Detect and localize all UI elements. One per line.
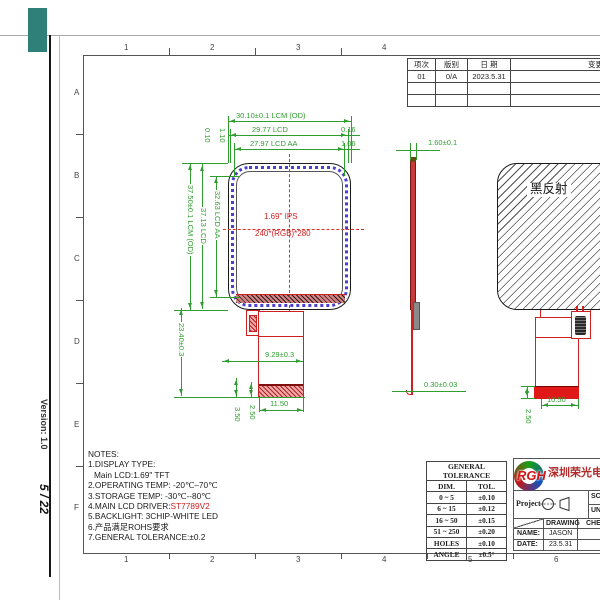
note-driver-value: ST7789V2: [171, 501, 210, 511]
tolerance-table: GENERAL TOLERANCE DIM. TOL. 0 ~ 5±0.10 6…: [426, 461, 507, 561]
titleblock-line: [543, 518, 544, 550]
extension-line: [521, 398, 535, 399]
frame-border-left: [83, 55, 84, 553]
dim-line: [229, 135, 348, 136]
tolerance-cell: HOLES: [427, 537, 467, 548]
dim-label-fpc-width-bottom: 11.50: [270, 400, 288, 408]
row-letter: D: [74, 337, 80, 346]
extension-line: [348, 129, 349, 163]
dim-line: [228, 121, 351, 122]
side-connector: [413, 302, 420, 330]
dim-label-gap-left-1: 0.10: [203, 127, 211, 144]
row-letter: F: [74, 503, 79, 512]
back-component-pin: [582, 306, 584, 312]
date-value: 23.5.31: [549, 541, 572, 548]
row-letter: C: [74, 254, 80, 263]
note-line: 6.产品满足ROHS要求: [88, 522, 218, 532]
scale-label: SCALE: [591, 493, 600, 500]
frame-tick: [76, 217, 83, 218]
tolerance-cell: ±0.5°: [467, 549, 507, 560]
dim-line: [251, 382, 252, 397]
col-number-top: 2: [210, 43, 214, 52]
frame-tick: [76, 134, 83, 135]
col-number-bottom: 3: [296, 555, 300, 564]
tolerance-cell: ±0.10: [467, 537, 507, 548]
page-indicator: 5 / 22: [37, 483, 50, 515]
frame-tick: [255, 553, 256, 559]
datasheet-page: Version: 1.0 5 / 22 1 2 3 4 1 2 3 4 5 6 …: [0, 0, 600, 600]
date-label: DATE:: [517, 541, 538, 548]
frame-border-top: [83, 55, 600, 56]
dim-label-od-height: 37.50±0.1 LCM (OD): [186, 184, 194, 256]
dim-line: [396, 150, 440, 151]
fpc-stiffener: [259, 384, 303, 397]
project-label: Project: [516, 499, 541, 508]
dim-line: [541, 405, 578, 406]
dim-label-aa-width: 27.97 LCD AA: [250, 140, 298, 148]
revision-col-header: 变更: [511, 59, 600, 71]
frame-tick: [76, 466, 83, 467]
note-line: 5.BACKLIGHT: 3CHIP-WHITE LED: [88, 511, 218, 521]
tolerance-cell: 6 ~ 15: [427, 503, 467, 514]
tolerance-cell: ±0.15: [467, 515, 507, 526]
extension-line: [228, 116, 229, 163]
note-line: 3.STORAGE TEMP: -30℃--80℃: [88, 491, 218, 501]
tolerance-cell: ±0.12: [467, 503, 507, 514]
fpc-tab-component: [249, 315, 257, 332]
dim-label-gap-left-2: 1.10: [218, 127, 226, 144]
revision-cell: 01: [408, 71, 436, 83]
frame-tick: [513, 553, 514, 559]
frame-tick: [341, 48, 342, 55]
lcd-driver-strip: [236, 294, 345, 303]
dim-label-stiffener-height: 2.50: [524, 408, 532, 425]
version-label: Version: 1.0: [38, 398, 48, 451]
extension-line: [351, 116, 352, 163]
notes-block: NOTES: 1.DISPLAY TYPE: Main LCD:1.69" TF…: [88, 449, 218, 543]
revision-cell: 0/A: [436, 71, 468, 83]
titleblock-line: [588, 504, 600, 505]
page-left-edge: [59, 35, 60, 600]
dim-label-stiffener-width: 10.50: [547, 396, 566, 404]
selection-overlay: [28, 8, 47, 52]
note-line: 1.DISPLAY TYPE:: [88, 459, 218, 469]
extension-line: [578, 399, 579, 409]
fpc-fold-line: [258, 336, 304, 337]
extension-line: [174, 310, 228, 311]
rgh-logo-text: RGH: [517, 469, 546, 483]
extension-line: [410, 143, 411, 160]
frame-tick: [76, 300, 83, 301]
revision-col-header: 项次: [408, 59, 436, 71]
extension-line: [416, 143, 417, 160]
revision-cell: [511, 95, 600, 107]
col-number-top: 1: [124, 43, 128, 52]
dim-label-od-width: 30.10±0.1 LCM (OD): [236, 112, 306, 120]
extension-line: [303, 398, 304, 412]
dim-line: [527, 386, 528, 398]
note-line: 4.MAIN LCD DRIVER:ST7789V2: [88, 501, 218, 511]
dim-label-aa-height: 32.63 LCD AA: [213, 190, 221, 240]
frame-tick: [341, 553, 342, 559]
titleblock-diagonal-cell: [514, 519, 543, 528]
dim-label-fpc-height: 23.40±0.3: [177, 322, 185, 357]
dim-line: [259, 410, 304, 411]
note-line: Main LCD:1.69" TFT: [88, 470, 218, 480]
extension-line: [521, 386, 535, 387]
dim-line: [236, 378, 237, 397]
lcd-side-view: [410, 162, 416, 310]
col-number-bottom: 4: [382, 555, 386, 564]
tolerance-cell: 51 ~ 250: [427, 526, 467, 537]
extension-line: [230, 129, 231, 163]
frame-tick: [76, 383, 83, 384]
drawing-label: DRAWING: [546, 520, 580, 527]
revision-col-header: 日 期: [468, 59, 511, 71]
name-label: NAME:: [517, 530, 540, 537]
dim-label-fpc-off1: 3.50: [233, 406, 241, 423]
dim-label-lcd-width: 29.77 LCD: [252, 126, 288, 134]
note-driver-prefix: 4.MAIN LCD DRIVER:: [88, 501, 171, 511]
back-component: [575, 316, 586, 335]
titleblock-line: [513, 539, 600, 540]
dim-label-lcd-height: 37.13 LCD: [199, 207, 207, 245]
col-number-bottom: 1: [124, 555, 128, 564]
revision-table: 项次 版别 日 期 变更 01 0/A 2023.5.31: [407, 58, 600, 107]
col-number-bottom: 2: [210, 555, 214, 564]
revision-cell: [511, 71, 600, 83]
dim-label-fpc-width-top: 9.29±0.3: [265, 351, 294, 359]
tolerance-cell: ±0.10: [467, 492, 507, 503]
revision-cell: [468, 83, 511, 95]
tolerance-header-tol: TOL.: [467, 481, 507, 492]
revision-cell: [468, 95, 511, 107]
extension-line: [259, 398, 260, 412]
unit-label: UNIT: [591, 507, 600, 514]
revision-cell: [436, 95, 468, 107]
frame-tick: [255, 48, 256, 55]
check-label: CHECK: [586, 520, 600, 527]
panel-size-label: 1.69" IPS: [264, 213, 298, 222]
tolerance-cell: ANGLE: [427, 549, 467, 560]
company-name: 深圳荣光电子: [548, 467, 600, 479]
frame-tick: [169, 48, 170, 55]
col-number-top: 3: [296, 43, 300, 52]
page-top-edge: [0, 35, 600, 36]
tolerance-title: GENERAL TOLERANCE: [427, 462, 507, 481]
row-letter: E: [74, 420, 79, 429]
revision-cell: [436, 83, 468, 95]
titleblock-line: [513, 528, 600, 529]
extension-line: [234, 143, 235, 176]
dim-line: [234, 149, 345, 150]
revision-col-header: 版别: [436, 59, 468, 71]
extension-line: [344, 143, 345, 176]
tolerance-cell: ±0.20: [467, 526, 507, 537]
third-angle-projection-icon: [540, 496, 572, 512]
col-number-bottom: 6: [554, 555, 558, 564]
revision-cell: [408, 95, 436, 107]
extension-line: [182, 163, 228, 164]
titleblock-line: [513, 550, 600, 551]
dim-label-fpc-thickness: 0.30±0.03: [424, 381, 457, 389]
extension-line: [210, 297, 240, 298]
titleblock-line: [513, 458, 600, 459]
extension-line: [210, 176, 240, 177]
dim-label-thickness: 1.60±0.1: [428, 139, 457, 147]
frame-tick: [169, 553, 170, 559]
note-line: 2.OPERATING TEMP: -20℃–70℃: [88, 480, 218, 490]
revision-cell: [408, 83, 436, 95]
tolerance-cell: 0 ~ 5: [427, 492, 467, 503]
row-letter: B: [74, 171, 79, 180]
col-number-top: 4: [382, 43, 386, 52]
back-component-pin: [576, 306, 578, 312]
dim-line: [392, 391, 466, 392]
panel-resolution-label: 240*(RGB)*280: [255, 230, 311, 239]
extension-line: [174, 397, 305, 398]
tolerance-cell: 16 ~ 50: [427, 515, 467, 526]
name-value: JASON: [549, 530, 572, 537]
tolerance-header-dim: DIM.: [427, 481, 467, 492]
row-letter: A: [74, 88, 79, 97]
note-line: 7.GENERAL TOLERANCE:±0.2: [88, 532, 218, 542]
revision-cell: [511, 83, 600, 95]
dim-label-fpc-off2: 2.50: [248, 404, 256, 421]
revision-cell: 2023.5.31: [468, 71, 511, 83]
dim-line: [348, 135, 360, 136]
notes-title: NOTES:: [88, 449, 218, 459]
dim-line: [222, 361, 303, 362]
titleblock-line: [588, 490, 589, 518]
back-surface-label: 黑反射: [527, 183, 571, 197]
